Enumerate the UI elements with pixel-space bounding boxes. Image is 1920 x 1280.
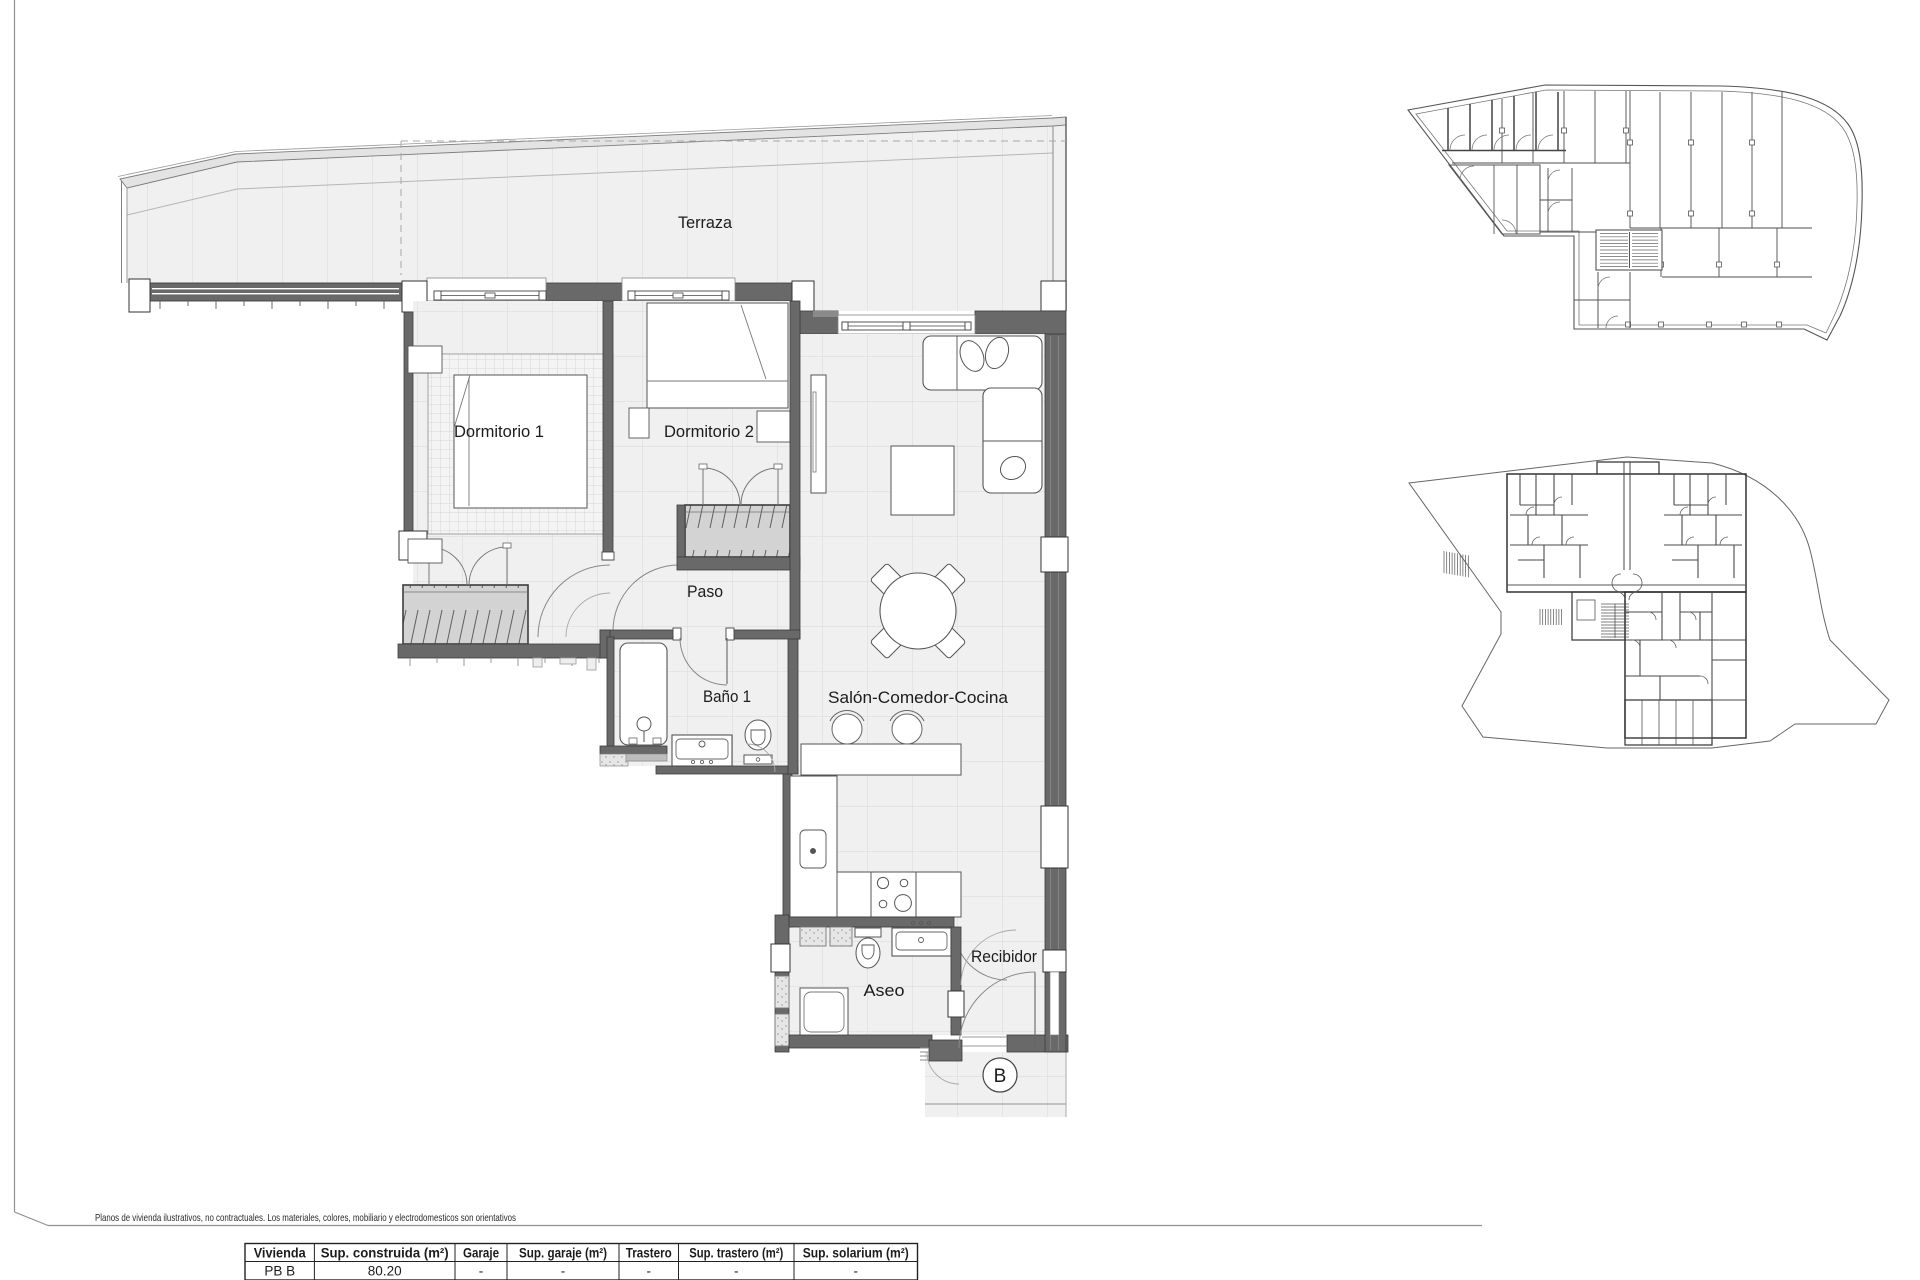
svg-text:Dormitorio 2: Dormitorio 2 — [664, 422, 754, 441]
svg-text:Vivienda: Vivienda — [254, 1246, 306, 1261]
svg-text:Sup. trastero (m²): Sup. trastero (m²) — [689, 1246, 783, 1261]
svg-text:Terraza: Terraza — [678, 213, 733, 232]
svg-text:Sup. construida (m²): Sup. construida (m²) — [321, 1246, 449, 1261]
svg-text:Trastero: Trastero — [626, 1246, 672, 1261]
svg-text:PB B: PB B — [264, 1264, 295, 1279]
svg-text:Baño 1: Baño 1 — [703, 687, 751, 706]
svg-text:80.20: 80.20 — [368, 1264, 402, 1279]
svg-text:Paso: Paso — [687, 582, 723, 601]
svg-text:-: - — [854, 1264, 859, 1279]
svg-text:Aseo: Aseo — [864, 981, 905, 1000]
svg-text:Planos de vivienda ilustrativo: Planos de vivienda ilustrativos, no cont… — [95, 1212, 516, 1224]
svg-text:Salón-Comedor-Cocina: Salón-Comedor-Cocina — [828, 688, 1009, 707]
svg-text:B: B — [994, 1066, 1007, 1087]
svg-text:-: - — [647, 1264, 652, 1279]
svg-text:-: - — [561, 1264, 566, 1279]
svg-text:Garaje: Garaje — [463, 1246, 499, 1261]
svg-text:-: - — [479, 1264, 484, 1279]
svg-text:Dormitorio 1: Dormitorio 1 — [454, 422, 544, 441]
svg-text:Recibidor: Recibidor — [971, 947, 1037, 966]
svg-text:Sup. solarium (m²): Sup. solarium (m²) — [803, 1246, 909, 1261]
svg-text:-: - — [734, 1264, 739, 1279]
svg-text:Sup. garaje (m²): Sup. garaje (m²) — [519, 1246, 607, 1261]
